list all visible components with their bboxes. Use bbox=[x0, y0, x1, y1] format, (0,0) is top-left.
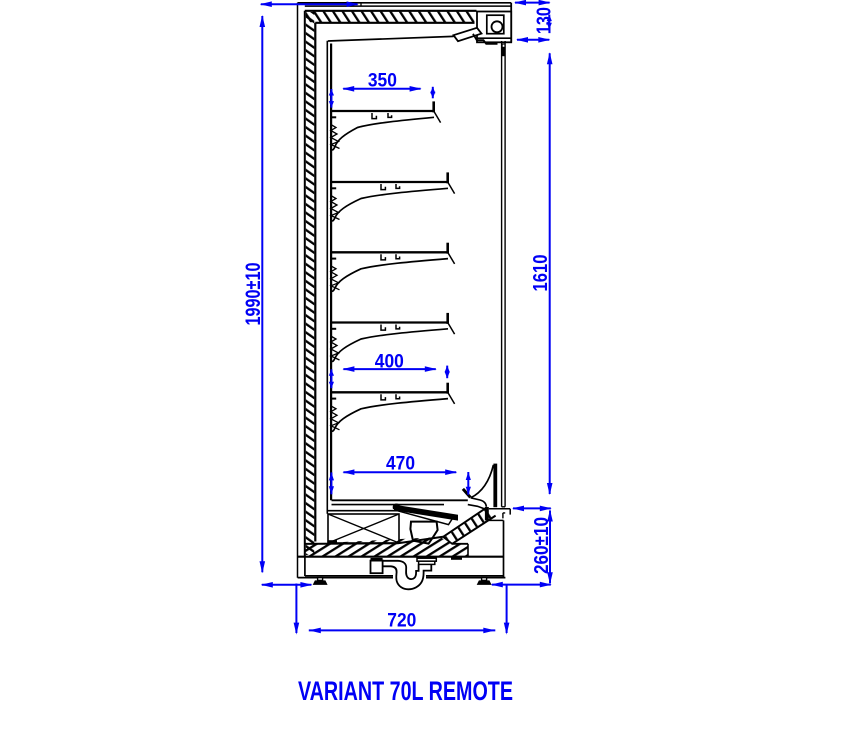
svg-text:720: 720 bbox=[387, 611, 416, 632]
svg-text:350: 350 bbox=[368, 71, 397, 92]
svg-text:400: 400 bbox=[375, 351, 404, 372]
svg-text:1990±10: 1990±10 bbox=[242, 263, 265, 326]
svg-text:130: 130 bbox=[534, 7, 556, 34]
svg-text:VARIANT 70L REMOTE: VARIANT 70L REMOTE bbox=[298, 676, 513, 706]
svg-text:1610: 1610 bbox=[530, 255, 552, 292]
svg-text:470: 470 bbox=[386, 453, 415, 474]
svg-text:260±10: 260±10 bbox=[531, 517, 553, 574]
